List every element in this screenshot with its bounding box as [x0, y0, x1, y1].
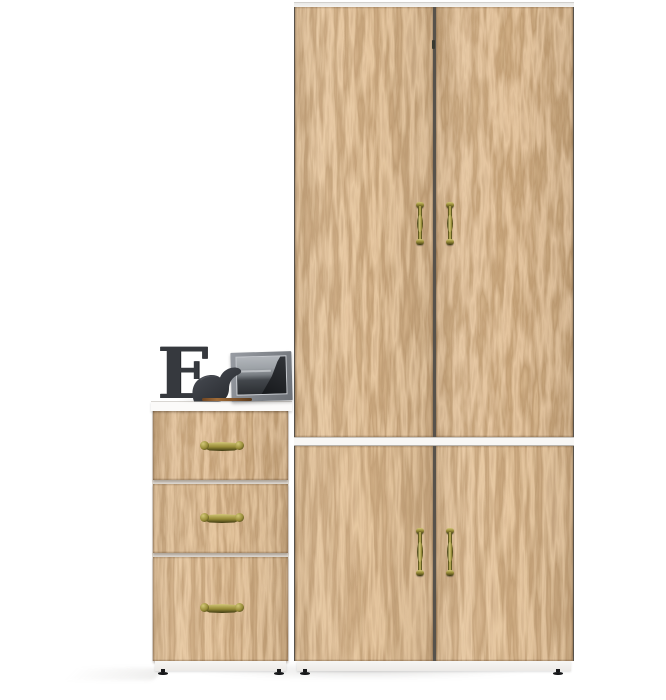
upper-right-door-handle	[446, 202, 454, 245]
handle-left-post	[200, 513, 209, 522]
handle-left-post	[200, 603, 209, 612]
wardrobe-plinth	[297, 661, 571, 671]
drawer-2-handle	[200, 512, 244, 525]
handle-bottom-cap	[446, 239, 454, 245]
handle-bulge	[447, 215, 453, 232]
wardrobe-right-foot	[553, 672, 563, 675]
handle-bulge	[447, 542, 453, 561]
wardrobe-lower-left-door	[295, 446, 433, 661]
lower-right-door-handle	[446, 528, 454, 576]
photo-rock-shape	[260, 355, 287, 394]
wardrobe-top-edge	[294, 2, 574, 7]
dresser-plinth	[155, 661, 286, 671]
wardrobe-upper-right-door	[436, 7, 573, 437]
dresser-left-foot	[158, 672, 168, 675]
wood-grain-texture	[436, 446, 573, 661]
elephant-figurine	[189, 362, 247, 402]
handle-bottom-cap	[416, 239, 424, 245]
drawer-3-handle	[200, 602, 244, 615]
door-seam-mark	[432, 40, 435, 49]
dresser-right-foot	[274, 672, 284, 675]
product-photo-stage: E	[0, 0, 666, 700]
lower-left-door-handle	[416, 528, 424, 576]
wooden-pencil	[202, 398, 252, 401]
drawer-1-handle	[200, 440, 244, 453]
page: { "scene": { "type": "furniture-product-…	[0, 0, 666, 700]
handle-right-post	[235, 441, 244, 450]
wood-grain-texture	[295, 7, 433, 437]
cast-shadow	[64, 668, 166, 680]
handle-bulge	[417, 215, 423, 232]
handle-bulge	[417, 542, 423, 561]
handle-bottom-cap	[446, 570, 454, 576]
wardrobe-middle-shelf-band	[294, 437, 574, 446]
handle-right-post	[235, 513, 244, 522]
wardrobe-lower-right-door	[436, 446, 573, 661]
handle-right-post	[235, 603, 244, 612]
handle-bottom-cap	[416, 570, 424, 576]
wardrobe-left-foot	[300, 672, 310, 675]
upper-left-door-handle	[416, 202, 424, 245]
wood-grain-texture	[295, 446, 433, 661]
wardrobe-upper-left-door	[295, 7, 433, 437]
handle-left-post	[200, 441, 209, 450]
wood-grain-texture	[436, 7, 573, 437]
